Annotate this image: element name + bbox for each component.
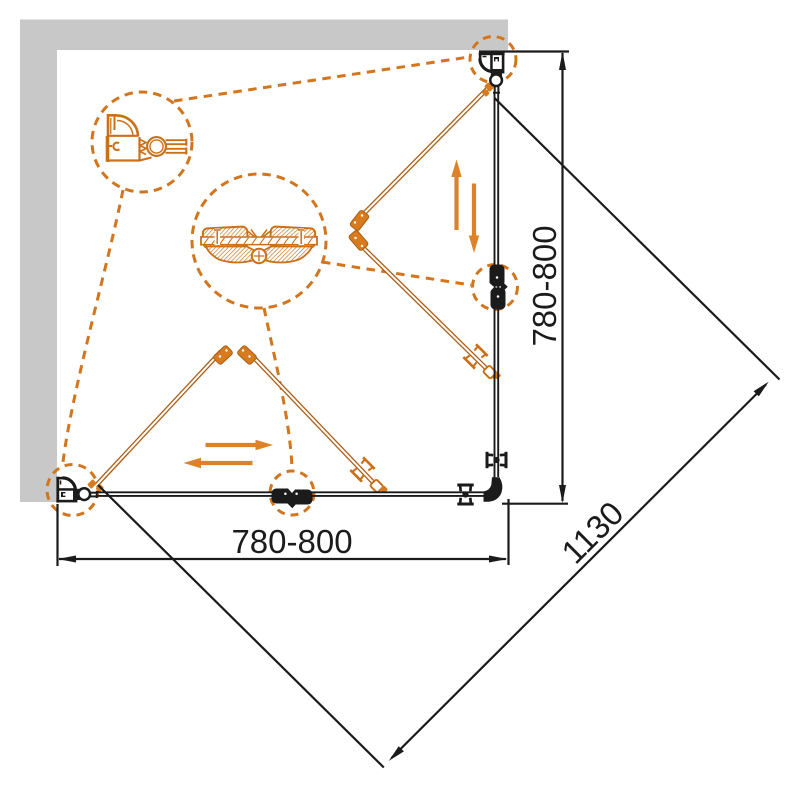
svg-text:780-800: 780-800 [231, 523, 352, 560]
svg-text:780-800: 780-800 [526, 225, 563, 346]
